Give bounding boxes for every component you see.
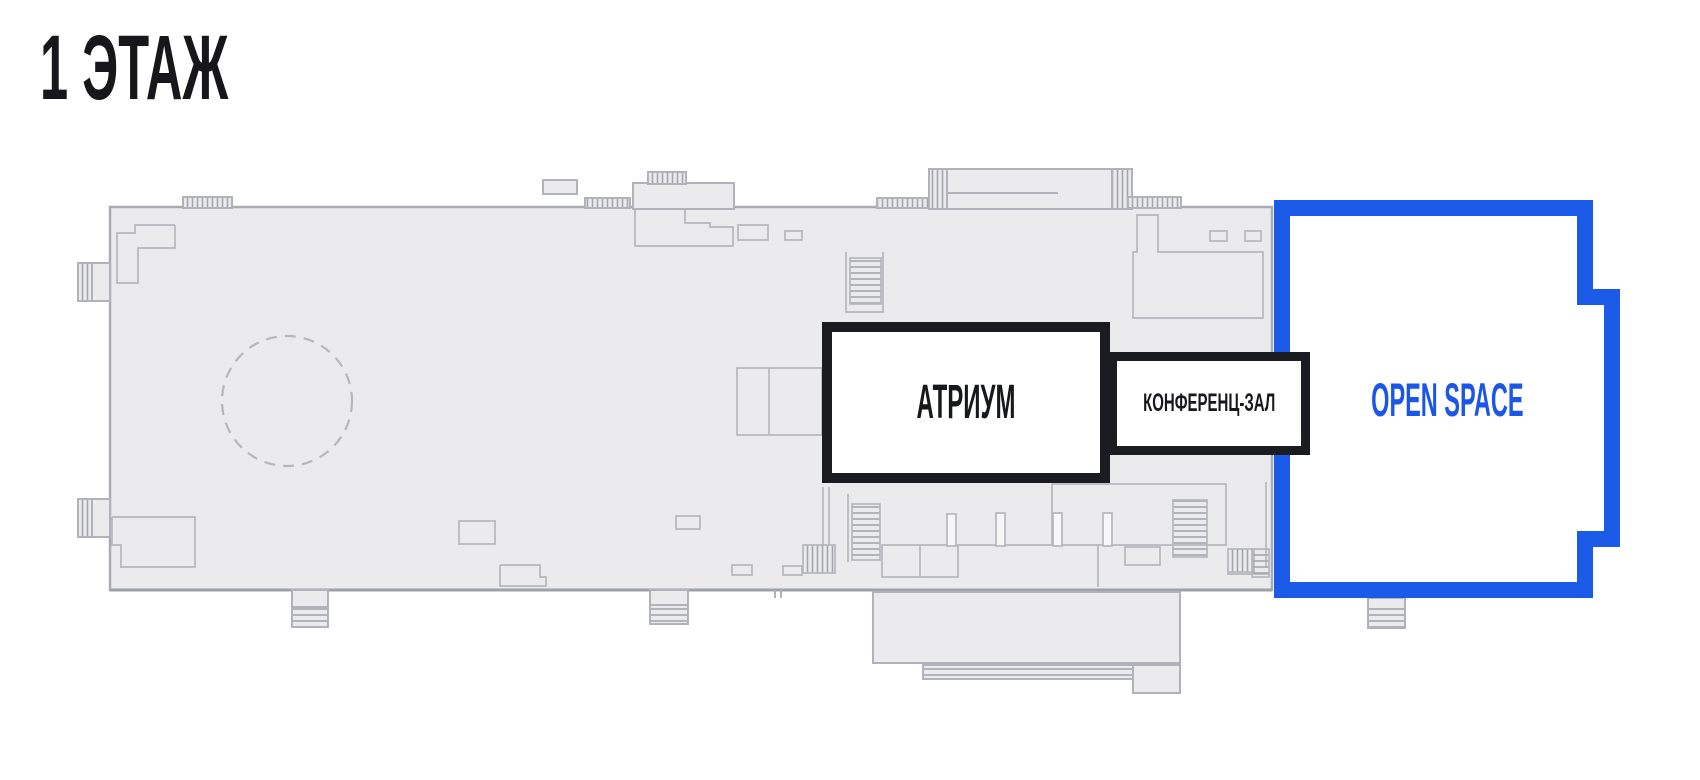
room-open-space[interactable]: OPEN SPACE (1274, 200, 1620, 598)
bottom-annexes (292, 590, 1405, 693)
left-entrances (78, 263, 110, 537)
conference-hall-label: КОНФЕРЕНЦ-ЗАЛ (1143, 391, 1275, 416)
room-atrium[interactable]: АТРИУМ (822, 322, 1110, 483)
open-space-label: OPEN SPACE (1371, 376, 1523, 423)
page-title: 1 ЭТАЖ (40, 22, 382, 118)
page-title-text: 1 ЭТАЖ (40, 22, 228, 114)
roof-annexes (183, 169, 1181, 209)
floor-plan-page: 1 ЭТАЖ АТРИУМ КОНФЕРЕНЦ-ЗАЛ OPEN SPACE (0, 0, 1700, 780)
atrium-label: АТРИУМ (917, 379, 1016, 427)
